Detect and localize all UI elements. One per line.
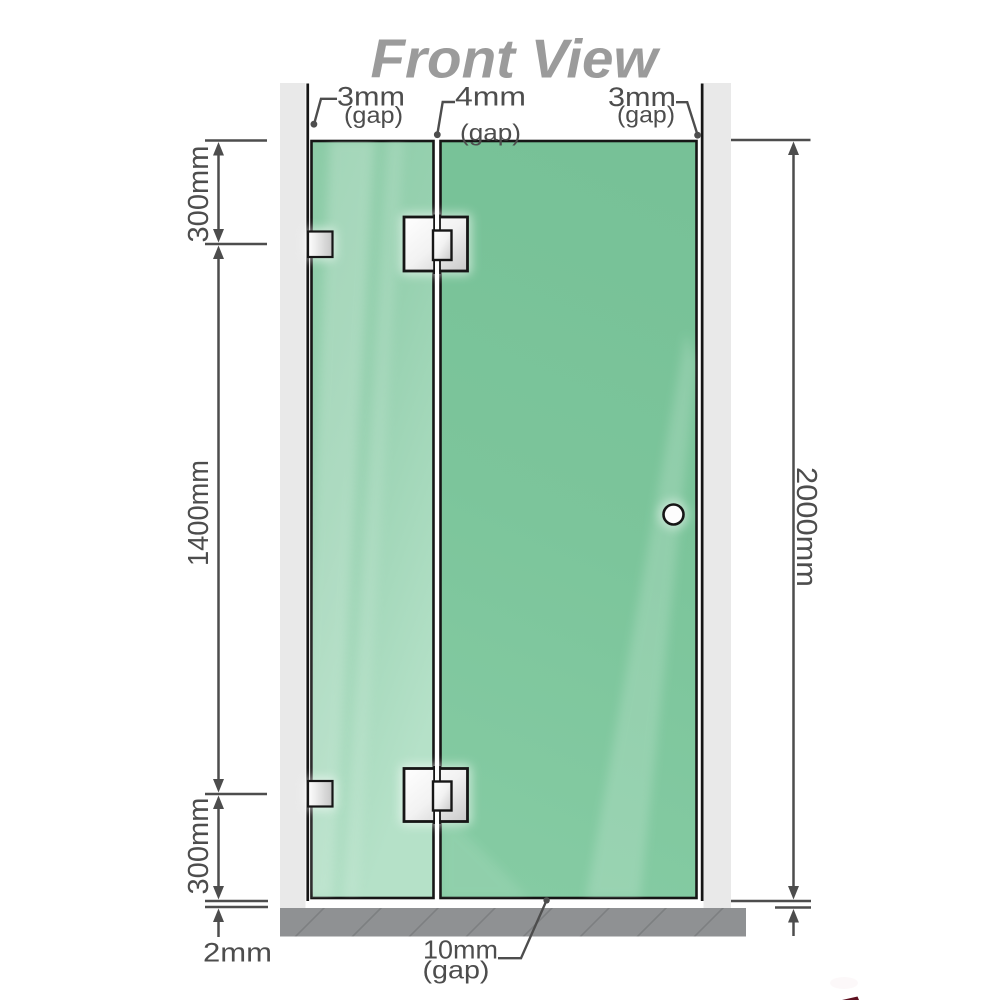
svg-text:2000mm: 2000mm [790, 467, 822, 587]
svg-text:1400mm: 1400mm [183, 460, 215, 566]
svg-text:(gap): (gap) [460, 120, 521, 146]
svg-text:(gap): (gap) [617, 102, 675, 128]
svg-text:(gap): (gap) [344, 102, 403, 128]
svg-text:300mm: 300mm [183, 798, 215, 895]
svg-text:300mm: 300mm [183, 146, 215, 243]
svg-text:2mm: 2mm [203, 938, 272, 968]
svg-text:4mm: 4mm [455, 82, 526, 112]
svg-text:(gap): (gap) [423, 957, 490, 985]
svg-text:Front View: Front View [371, 28, 661, 90]
